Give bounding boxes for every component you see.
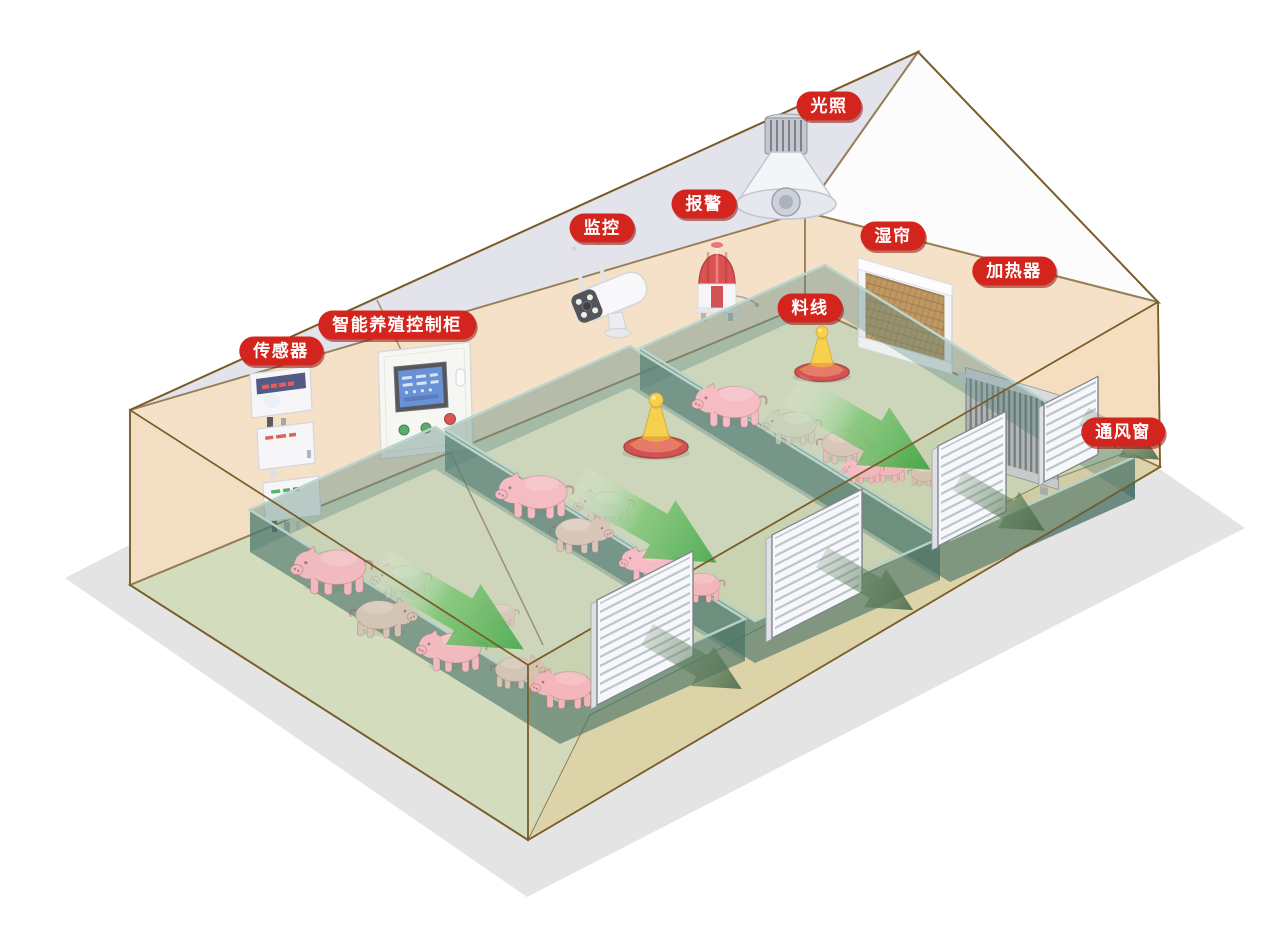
label-vent-window: 通风窗 [1081, 418, 1165, 447]
barn-illustration [0, 0, 1269, 932]
label-heater: 加热器 [972, 257, 1056, 286]
smart-pig-farm-diagram: 光照 报警 监控 湿帘 加热器 料线 智能养殖控制柜 传感器 通风窗 [0, 0, 1269, 932]
label-wet-curtain: 湿帘 [861, 222, 926, 251]
label-monitoring: 监控 [570, 214, 635, 243]
label-feed-line: 料线 [778, 294, 843, 323]
label-sensor: 传感器 [239, 337, 323, 366]
label-alarm: 报警 [672, 190, 737, 219]
label-control-cabinet: 智能养殖控制柜 [318, 311, 476, 340]
label-lighting: 光照 [797, 92, 862, 121]
